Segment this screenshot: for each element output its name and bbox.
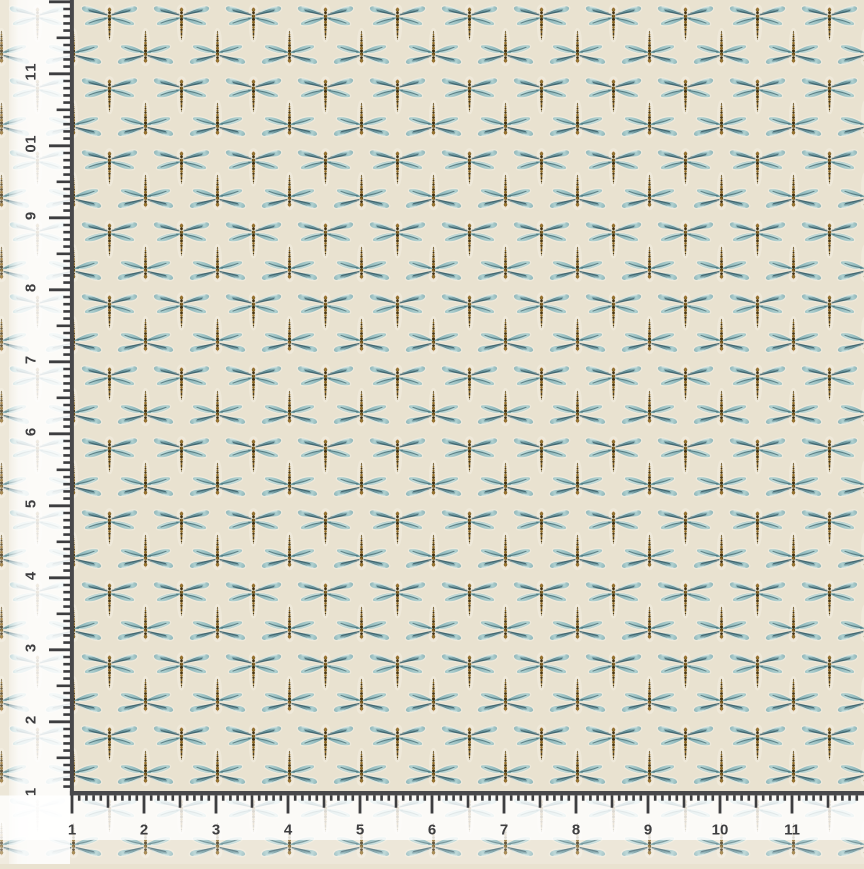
svg-text:1: 1 <box>23 72 40 80</box>
svg-text:1: 1 <box>23 135 40 143</box>
svg-text:9: 9 <box>644 822 652 839</box>
svg-text:3: 3 <box>212 822 220 839</box>
svg-text:1: 1 <box>23 63 40 71</box>
svg-text:1: 1 <box>68 822 76 839</box>
svg-text:1: 1 <box>23 788 40 796</box>
svg-text:9: 9 <box>23 212 40 220</box>
svg-text:2: 2 <box>23 716 40 724</box>
svg-text:7: 7 <box>23 356 40 364</box>
svg-text:0: 0 <box>23 144 40 152</box>
svg-text:5: 5 <box>23 500 40 508</box>
svg-text:8: 8 <box>23 284 40 292</box>
svg-text:3: 3 <box>23 644 40 652</box>
svg-text:6: 6 <box>23 428 40 436</box>
svg-text:6: 6 <box>428 822 436 839</box>
svg-text:7: 7 <box>500 822 508 839</box>
svg-text:5: 5 <box>356 822 364 839</box>
svg-text:4: 4 <box>284 822 293 839</box>
svg-text:4: 4 <box>23 571 40 580</box>
svg-text:11: 11 <box>784 822 800 839</box>
svg-text:2: 2 <box>140 822 148 839</box>
svg-text:10: 10 <box>712 822 729 839</box>
svg-text:8: 8 <box>572 822 580 839</box>
